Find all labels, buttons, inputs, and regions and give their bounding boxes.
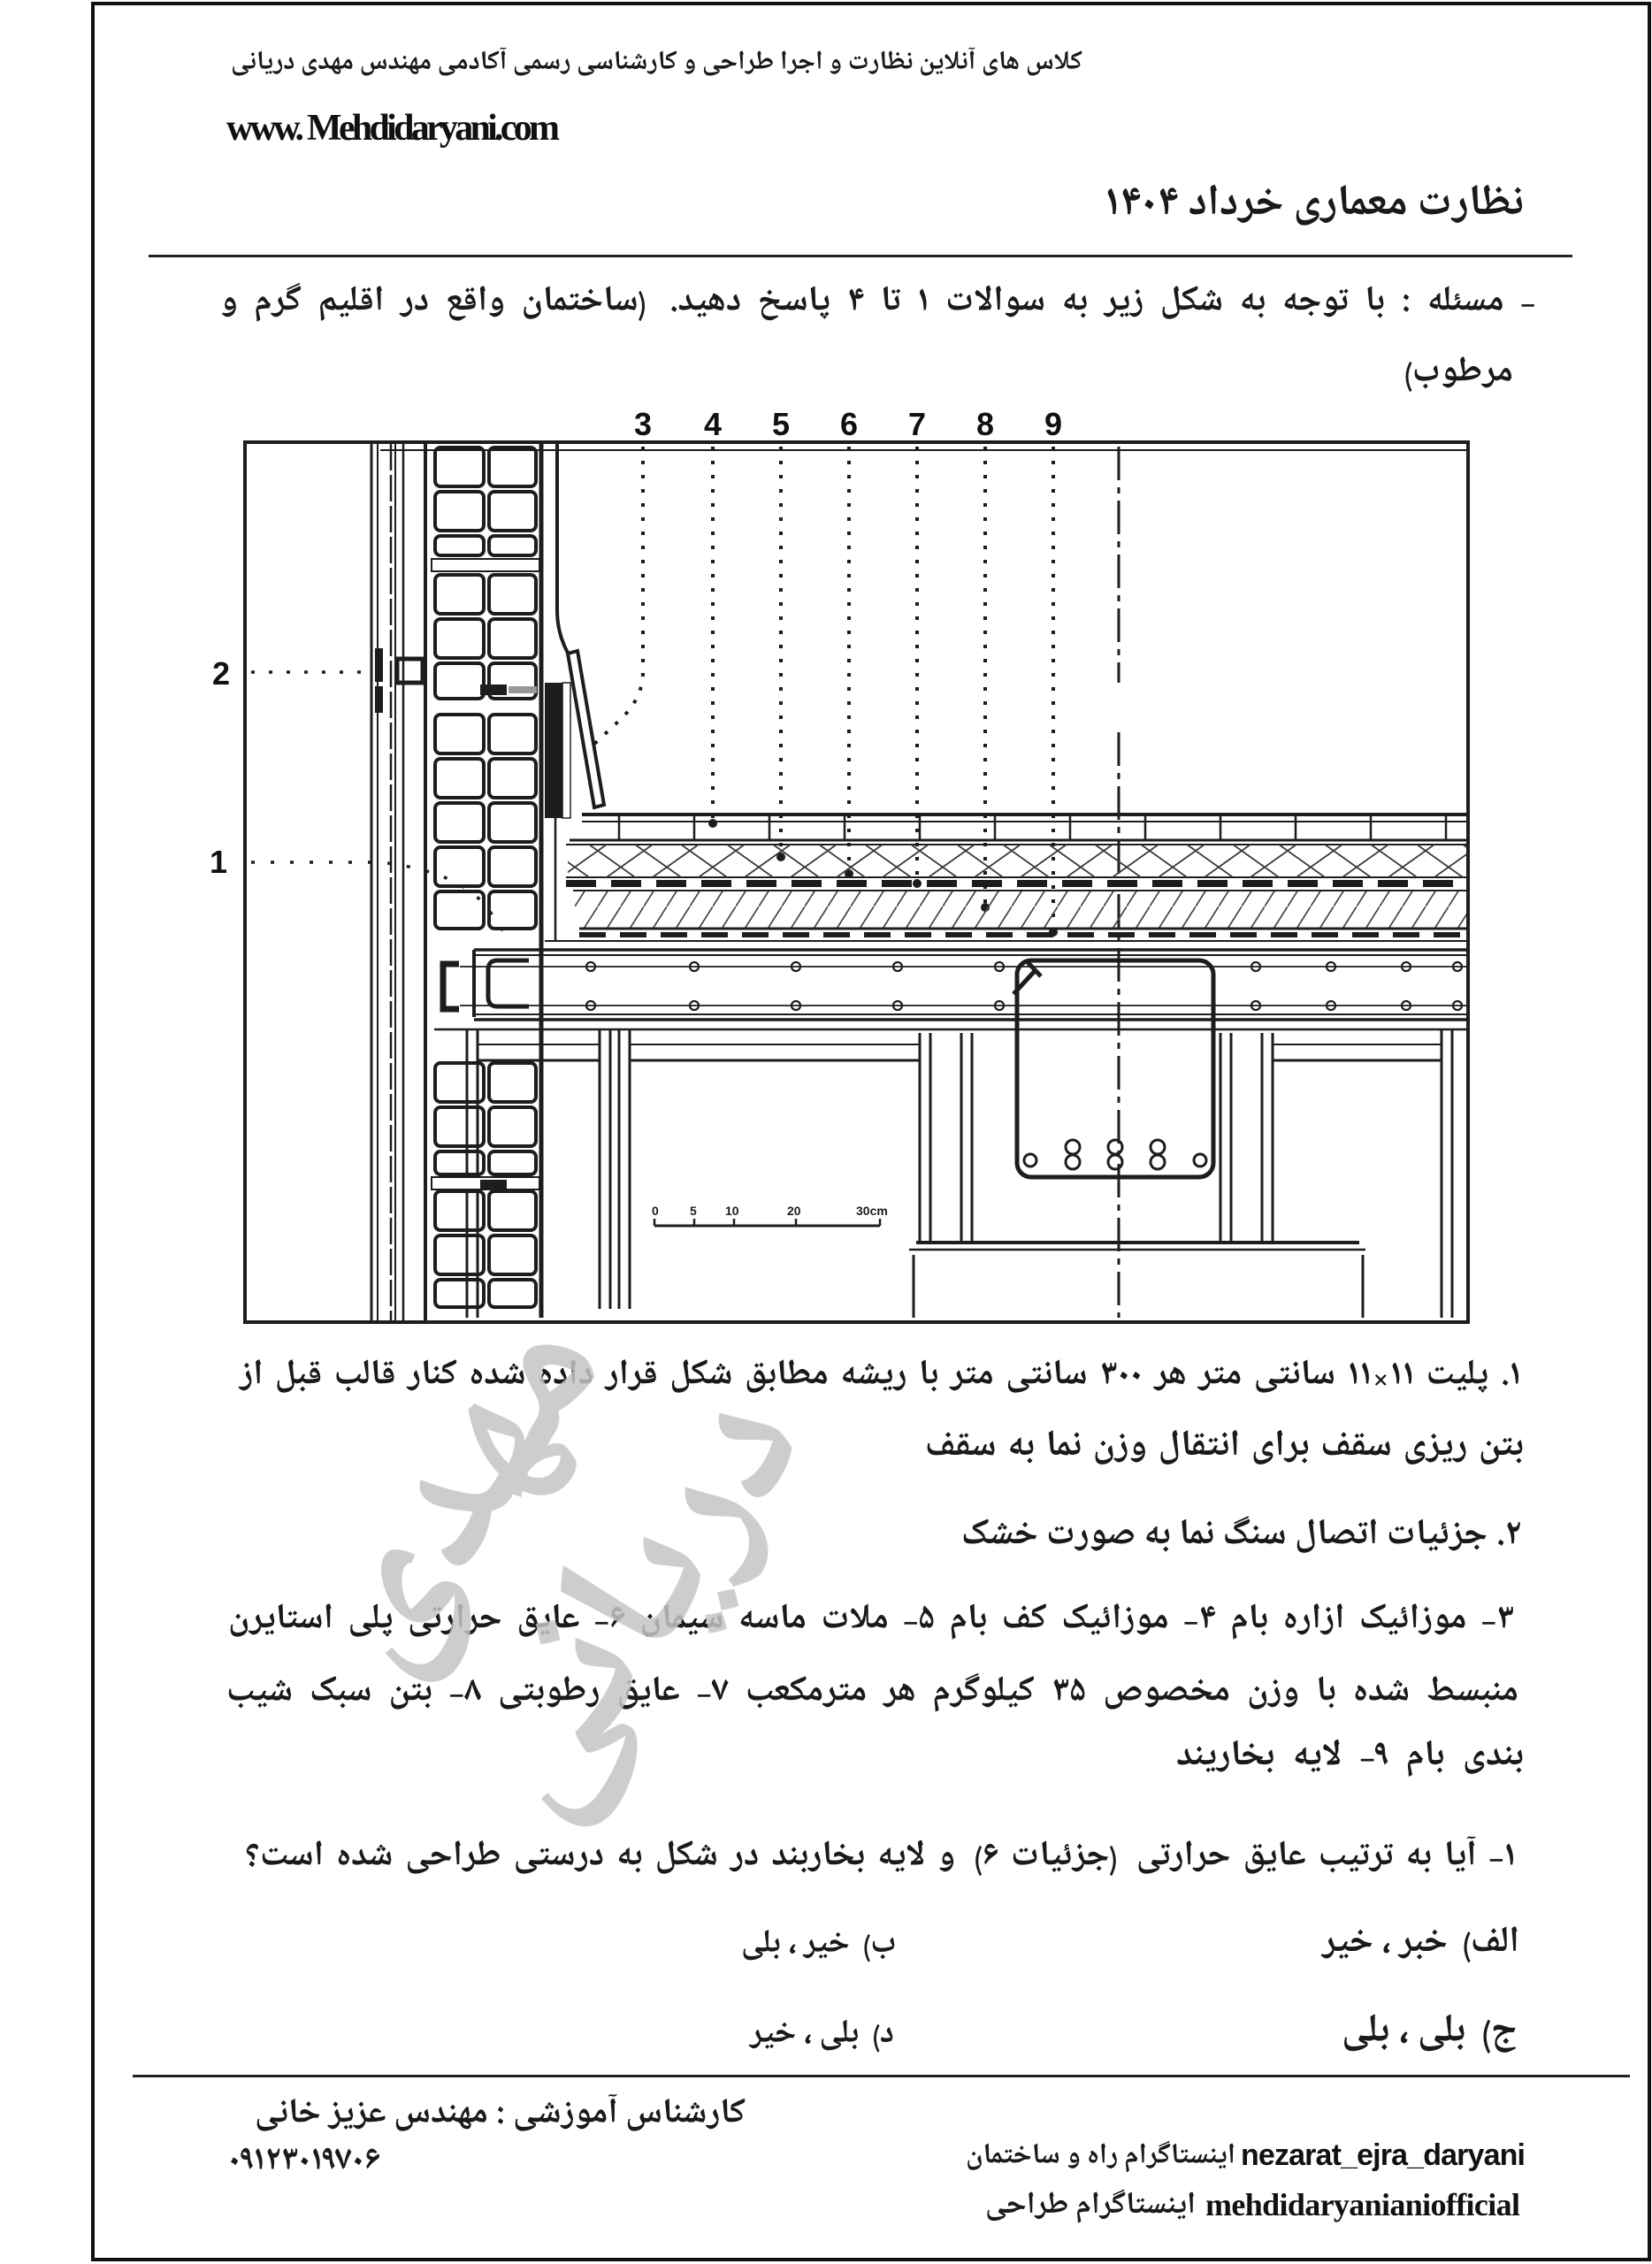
svg-text:0: 0	[652, 1204, 659, 1218]
svg-text:5: 5	[690, 1204, 697, 1218]
svg-text:mehdidaryanianiofficial: mehdidaryanianiofficial	[1205, 2187, 1520, 2222]
svg-text:9: 9	[1044, 406, 1062, 442]
svg-text:1: 1	[210, 844, 227, 880]
svg-text:3: 3	[634, 406, 652, 442]
svg-text:4: 4	[704, 406, 722, 442]
svg-text:2: 2	[212, 655, 230, 692]
svg-text:www. Mehdidaryani.com: www. Mehdidaryani.com	[226, 108, 560, 149]
svg-text:6: 6	[840, 406, 858, 442]
svg-text:7: 7	[908, 406, 926, 442]
svg-text:nezarat_ejra_daryani: nezarat_ejra_daryani	[1241, 2138, 1526, 2172]
svg-text:8: 8	[976, 406, 994, 442]
svg-text:10: 10	[725, 1204, 739, 1218]
svg-text:20: 20	[787, 1204, 801, 1218]
svg-text:5: 5	[772, 406, 790, 442]
svg-text:30cm: 30cm	[856, 1204, 888, 1218]
